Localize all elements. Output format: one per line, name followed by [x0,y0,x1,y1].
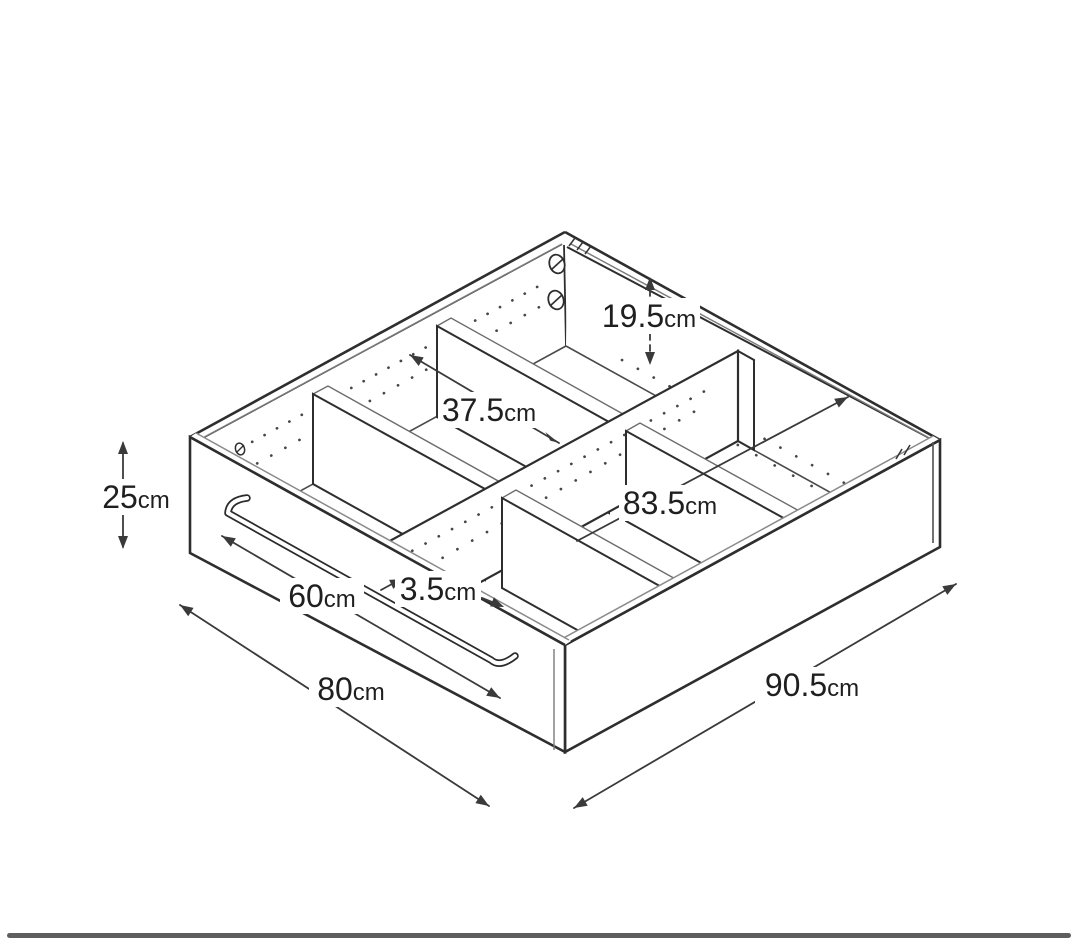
drawer-diagram: 19.5cm 37.5cm 83.5cm 25cm [0,0,1080,944]
dimension-outer-height: 25cm [94,441,178,549]
horizontal-scrollbar[interactable] [7,933,1071,938]
screenshot-page: 19.5cm 37.5cm 83.5cm 25cm [0,0,1080,944]
